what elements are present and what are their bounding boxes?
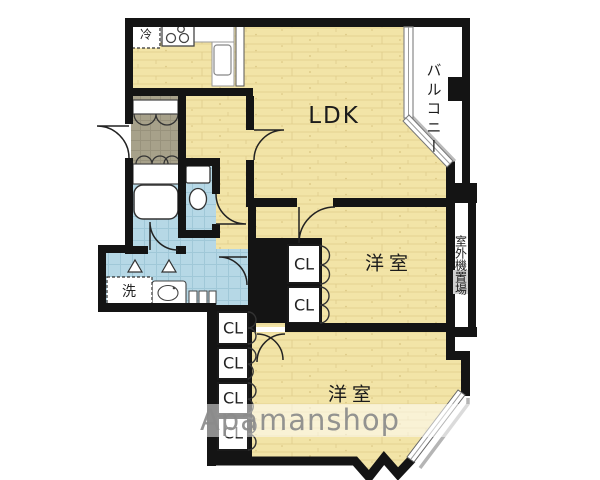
zigzag-break-line (207, 458, 412, 477)
label-outdoor-unit: 室外機置場 (453, 235, 470, 295)
label-bedroom-mid: 洋室 (365, 249, 413, 276)
washroom-storage-boxes (189, 291, 216, 304)
kitchen-partition (236, 19, 244, 86)
washbasin-icon (152, 281, 186, 306)
label-closet-mid-1: CL (294, 255, 314, 274)
label-washer: 洗 (122, 281, 136, 301)
stove-icon (162, 24, 194, 46)
watermark-text: Apamanshop (200, 403, 400, 437)
label-ldk: LDK (308, 103, 360, 129)
label-fridge: 冷 (140, 26, 152, 43)
floorplan-page: LDK 洋室 洋室 CL CL CL CL CL CL バルコニー 室外機置場 … (0, 0, 600, 480)
entry-door-arc (97, 126, 129, 158)
label-closet-low-1: CL (223, 319, 243, 338)
balcony-wall-block (448, 77, 470, 101)
bathtub-icon (134, 185, 178, 219)
label-balcony: バルコニー (424, 63, 445, 158)
label-closet-mid-2: CL (294, 296, 314, 315)
label-closet-low-2: CL (223, 354, 243, 373)
